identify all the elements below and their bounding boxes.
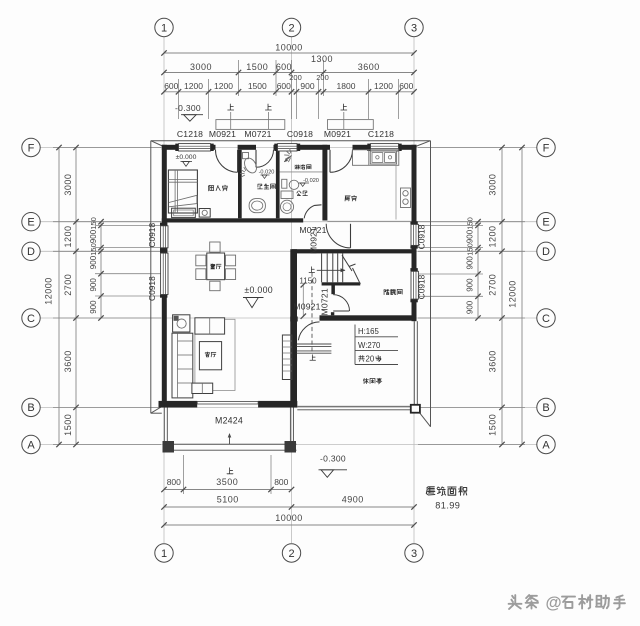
svg-text:3600: 3600: [63, 350, 73, 372]
svg-text:F: F: [543, 142, 550, 154]
svg-text:3600: 3600: [358, 62, 380, 72]
svg-text:C0918: C0918: [416, 274, 426, 299]
svg-text:1200: 1200: [214, 81, 233, 91]
svg-text:1500: 1500: [488, 414, 498, 436]
svg-text:3: 3: [411, 22, 417, 34]
svg-text:C1218: C1218: [177, 129, 203, 139]
svg-text:600: 600: [399, 81, 413, 91]
svg-text:E: E: [542, 217, 549, 229]
svg-text:±0.000: ±0.000: [244, 285, 273, 295]
svg-text:-0.020: -0.020: [259, 170, 275, 176]
svg-text:4900: 4900: [342, 495, 364, 505]
svg-text:600: 600: [276, 62, 292, 72]
svg-text:E: E: [27, 217, 34, 229]
svg-text:600: 600: [164, 81, 178, 91]
svg-text:C: C: [27, 313, 35, 325]
svg-text:M0721: M0721: [244, 129, 271, 139]
svg-text:900: 900: [466, 256, 475, 270]
svg-text:3000: 3000: [63, 174, 73, 196]
svg-text:A: A: [27, 439, 35, 451]
svg-text:1150: 1150: [299, 277, 317, 286]
svg-text:900: 900: [466, 229, 475, 243]
svg-text:1200: 1200: [374, 81, 393, 91]
svg-text:900: 900: [89, 229, 98, 243]
svg-text:C0918: C0918: [416, 224, 426, 249]
svg-text:C0918: C0918: [147, 223, 157, 248]
svg-text:900: 900: [466, 278, 475, 292]
svg-text:2700: 2700: [63, 274, 73, 296]
svg-text:3: 3: [411, 548, 417, 560]
svg-text:10000: 10000: [275, 43, 303, 53]
svg-text:1500: 1500: [63, 414, 73, 436]
svg-text:1800: 1800: [337, 81, 356, 91]
svg-text:12000: 12000: [44, 277, 54, 305]
svg-text:1: 1: [161, 22, 167, 34]
svg-text:150: 150: [466, 243, 475, 256]
svg-text:20: 20: [366, 355, 375, 364]
svg-text:1500: 1500: [246, 62, 268, 72]
svg-text:D: D: [542, 246, 550, 258]
svg-text:-0.300: -0.300: [175, 103, 201, 113]
svg-text:800: 800: [167, 477, 181, 487]
svg-text:3600: 3600: [488, 350, 498, 372]
svg-text:150: 150: [89, 243, 98, 256]
svg-text:-0.300: -0.300: [320, 454, 346, 464]
svg-text:5100: 5100: [217, 495, 239, 505]
svg-text:150: 150: [466, 217, 475, 230]
svg-text:M2424: M2424: [215, 416, 243, 426]
svg-text:900: 900: [300, 81, 314, 91]
svg-text:800: 800: [274, 477, 288, 487]
svg-text:M0721: M0721: [320, 288, 330, 315]
svg-text:F: F: [28, 142, 35, 154]
svg-text:B: B: [27, 402, 34, 414]
svg-text:1200: 1200: [184, 81, 203, 91]
svg-text:H:165: H:165: [358, 327, 379, 336]
svg-text:C1218: C1218: [368, 129, 394, 139]
svg-text:200: 200: [316, 73, 329, 82]
svg-text:C0918: C0918: [287, 129, 313, 139]
svg-text:W:270: W:270: [358, 341, 381, 350]
svg-text:900: 900: [89, 300, 98, 314]
svg-text:2: 2: [288, 22, 294, 34]
svg-text:1: 1: [161, 548, 167, 560]
svg-text:81.99: 81.99: [435, 501, 460, 511]
svg-text:C: C: [542, 313, 550, 325]
svg-text:±0.000: ±0.000: [176, 154, 197, 161]
svg-text:A: A: [542, 439, 550, 451]
svg-text:150: 150: [89, 217, 98, 230]
svg-text:M0921: M0921: [293, 302, 320, 312]
svg-text:12000: 12000: [508, 280, 518, 308]
svg-text:3000: 3000: [190, 62, 212, 72]
svg-text:M0921: M0921: [209, 129, 236, 139]
svg-text:B: B: [542, 402, 549, 414]
svg-text:M0921: M0921: [309, 227, 319, 254]
svg-text:2: 2: [288, 548, 294, 560]
svg-text:600: 600: [277, 81, 291, 91]
svg-text:1200: 1200: [488, 225, 498, 247]
svg-text:10000: 10000: [275, 513, 303, 523]
svg-text:@: @: [546, 594, 562, 612]
svg-text:2700: 2700: [488, 274, 498, 296]
svg-text:1300: 1300: [311, 54, 333, 64]
svg-text:M0921: M0921: [324, 129, 351, 139]
svg-text:C0918: C0918: [147, 276, 157, 301]
svg-text:900: 900: [89, 255, 98, 269]
svg-text:3000: 3000: [488, 174, 498, 196]
svg-text:900: 900: [466, 300, 475, 314]
svg-text:1200: 1200: [63, 225, 73, 247]
svg-text:900: 900: [89, 278, 98, 292]
svg-text:3500: 3500: [216, 477, 238, 487]
svg-text:D: D: [27, 246, 35, 258]
svg-text:1500: 1500: [248, 81, 267, 91]
